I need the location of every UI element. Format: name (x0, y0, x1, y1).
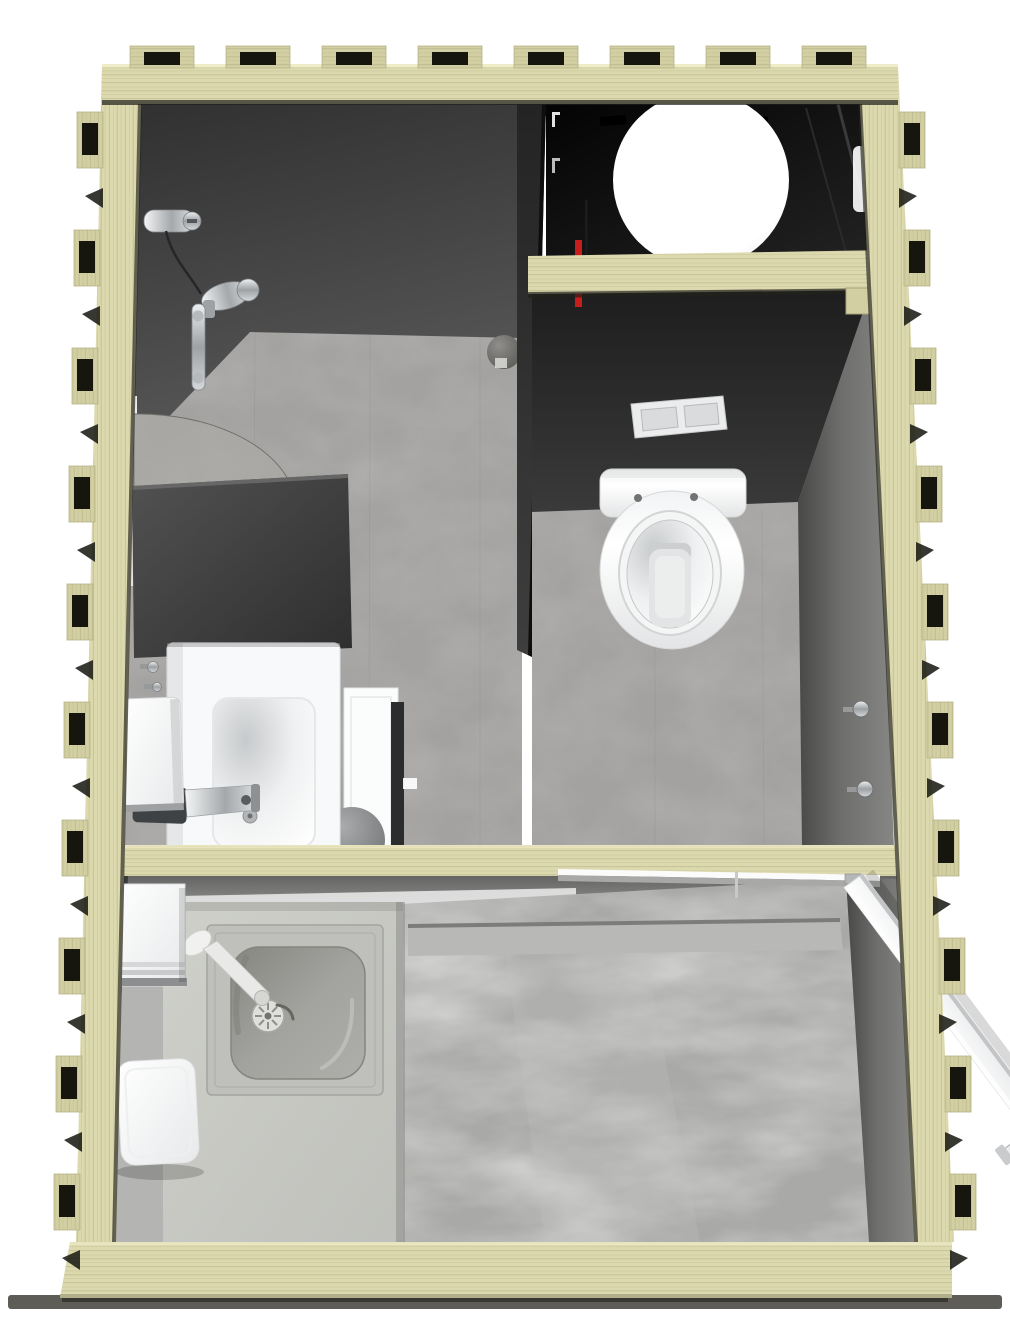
counter-top-shadow (163, 902, 403, 911)
kitchen-sink-unit (178, 925, 383, 1095)
rail-knob-top (193, 311, 204, 322)
drain-dome-highlight (495, 358, 507, 368)
upper-rooms (104, 92, 904, 883)
glass-post (735, 871, 738, 898)
soap-dispenser (122, 697, 184, 812)
tap-tip (255, 991, 270, 1006)
basin-bowl (213, 698, 315, 848)
beam-edge-dark (60, 1294, 952, 1298)
partition-block (132, 474, 352, 658)
beam-edge-light (102, 64, 898, 67)
water-tank-sphere (613, 92, 789, 268)
beam-edge-dark (102, 100, 898, 105)
door-frame-tab (403, 778, 417, 789)
floor-plan-stage: Sanitary container module - top-down 3D … (0, 0, 1010, 1326)
hand-shower-head (237, 279, 259, 301)
floor-plan-render (0, 0, 1010, 1326)
mount-bolt-right (690, 493, 698, 501)
mixer-knob-slot (187, 219, 197, 223)
tap-spout-end (251, 784, 260, 812)
flush-channel-inner (655, 556, 685, 618)
rail-knob-bottom (193, 373, 204, 384)
toilet-room (532, 286, 894, 848)
door-mat-strip (408, 918, 843, 956)
flush-button-left (641, 407, 678, 431)
beam-edge-light (70, 1242, 952, 1245)
sink-bowl (231, 947, 365, 1079)
bottom-frame-beam (60, 1242, 952, 1298)
technical-compartment (546, 92, 890, 268)
toilet-body-shadow (602, 469, 744, 478)
basin-top-seam (167, 643, 340, 647)
interior-door-edge (391, 702, 404, 854)
counter-right-shadow (396, 902, 405, 1242)
beam-top-edge (118, 845, 902, 848)
entry-room (88, 860, 1010, 1242)
flush-button-right (684, 403, 719, 427)
dark-drain-pipe (585, 200, 588, 262)
top-frame-beam (102, 64, 898, 105)
mount-bolt-left (634, 494, 642, 502)
tap-aerator (241, 795, 251, 805)
ceiling-bracket (600, 115, 627, 126)
box-base (111, 978, 187, 986)
box-right-shade (179, 888, 186, 982)
washbasin (167, 643, 340, 856)
wall-hung-toilet (600, 469, 746, 649)
basin-drain-center (248, 814, 253, 819)
box-shadow (116, 1164, 204, 1180)
